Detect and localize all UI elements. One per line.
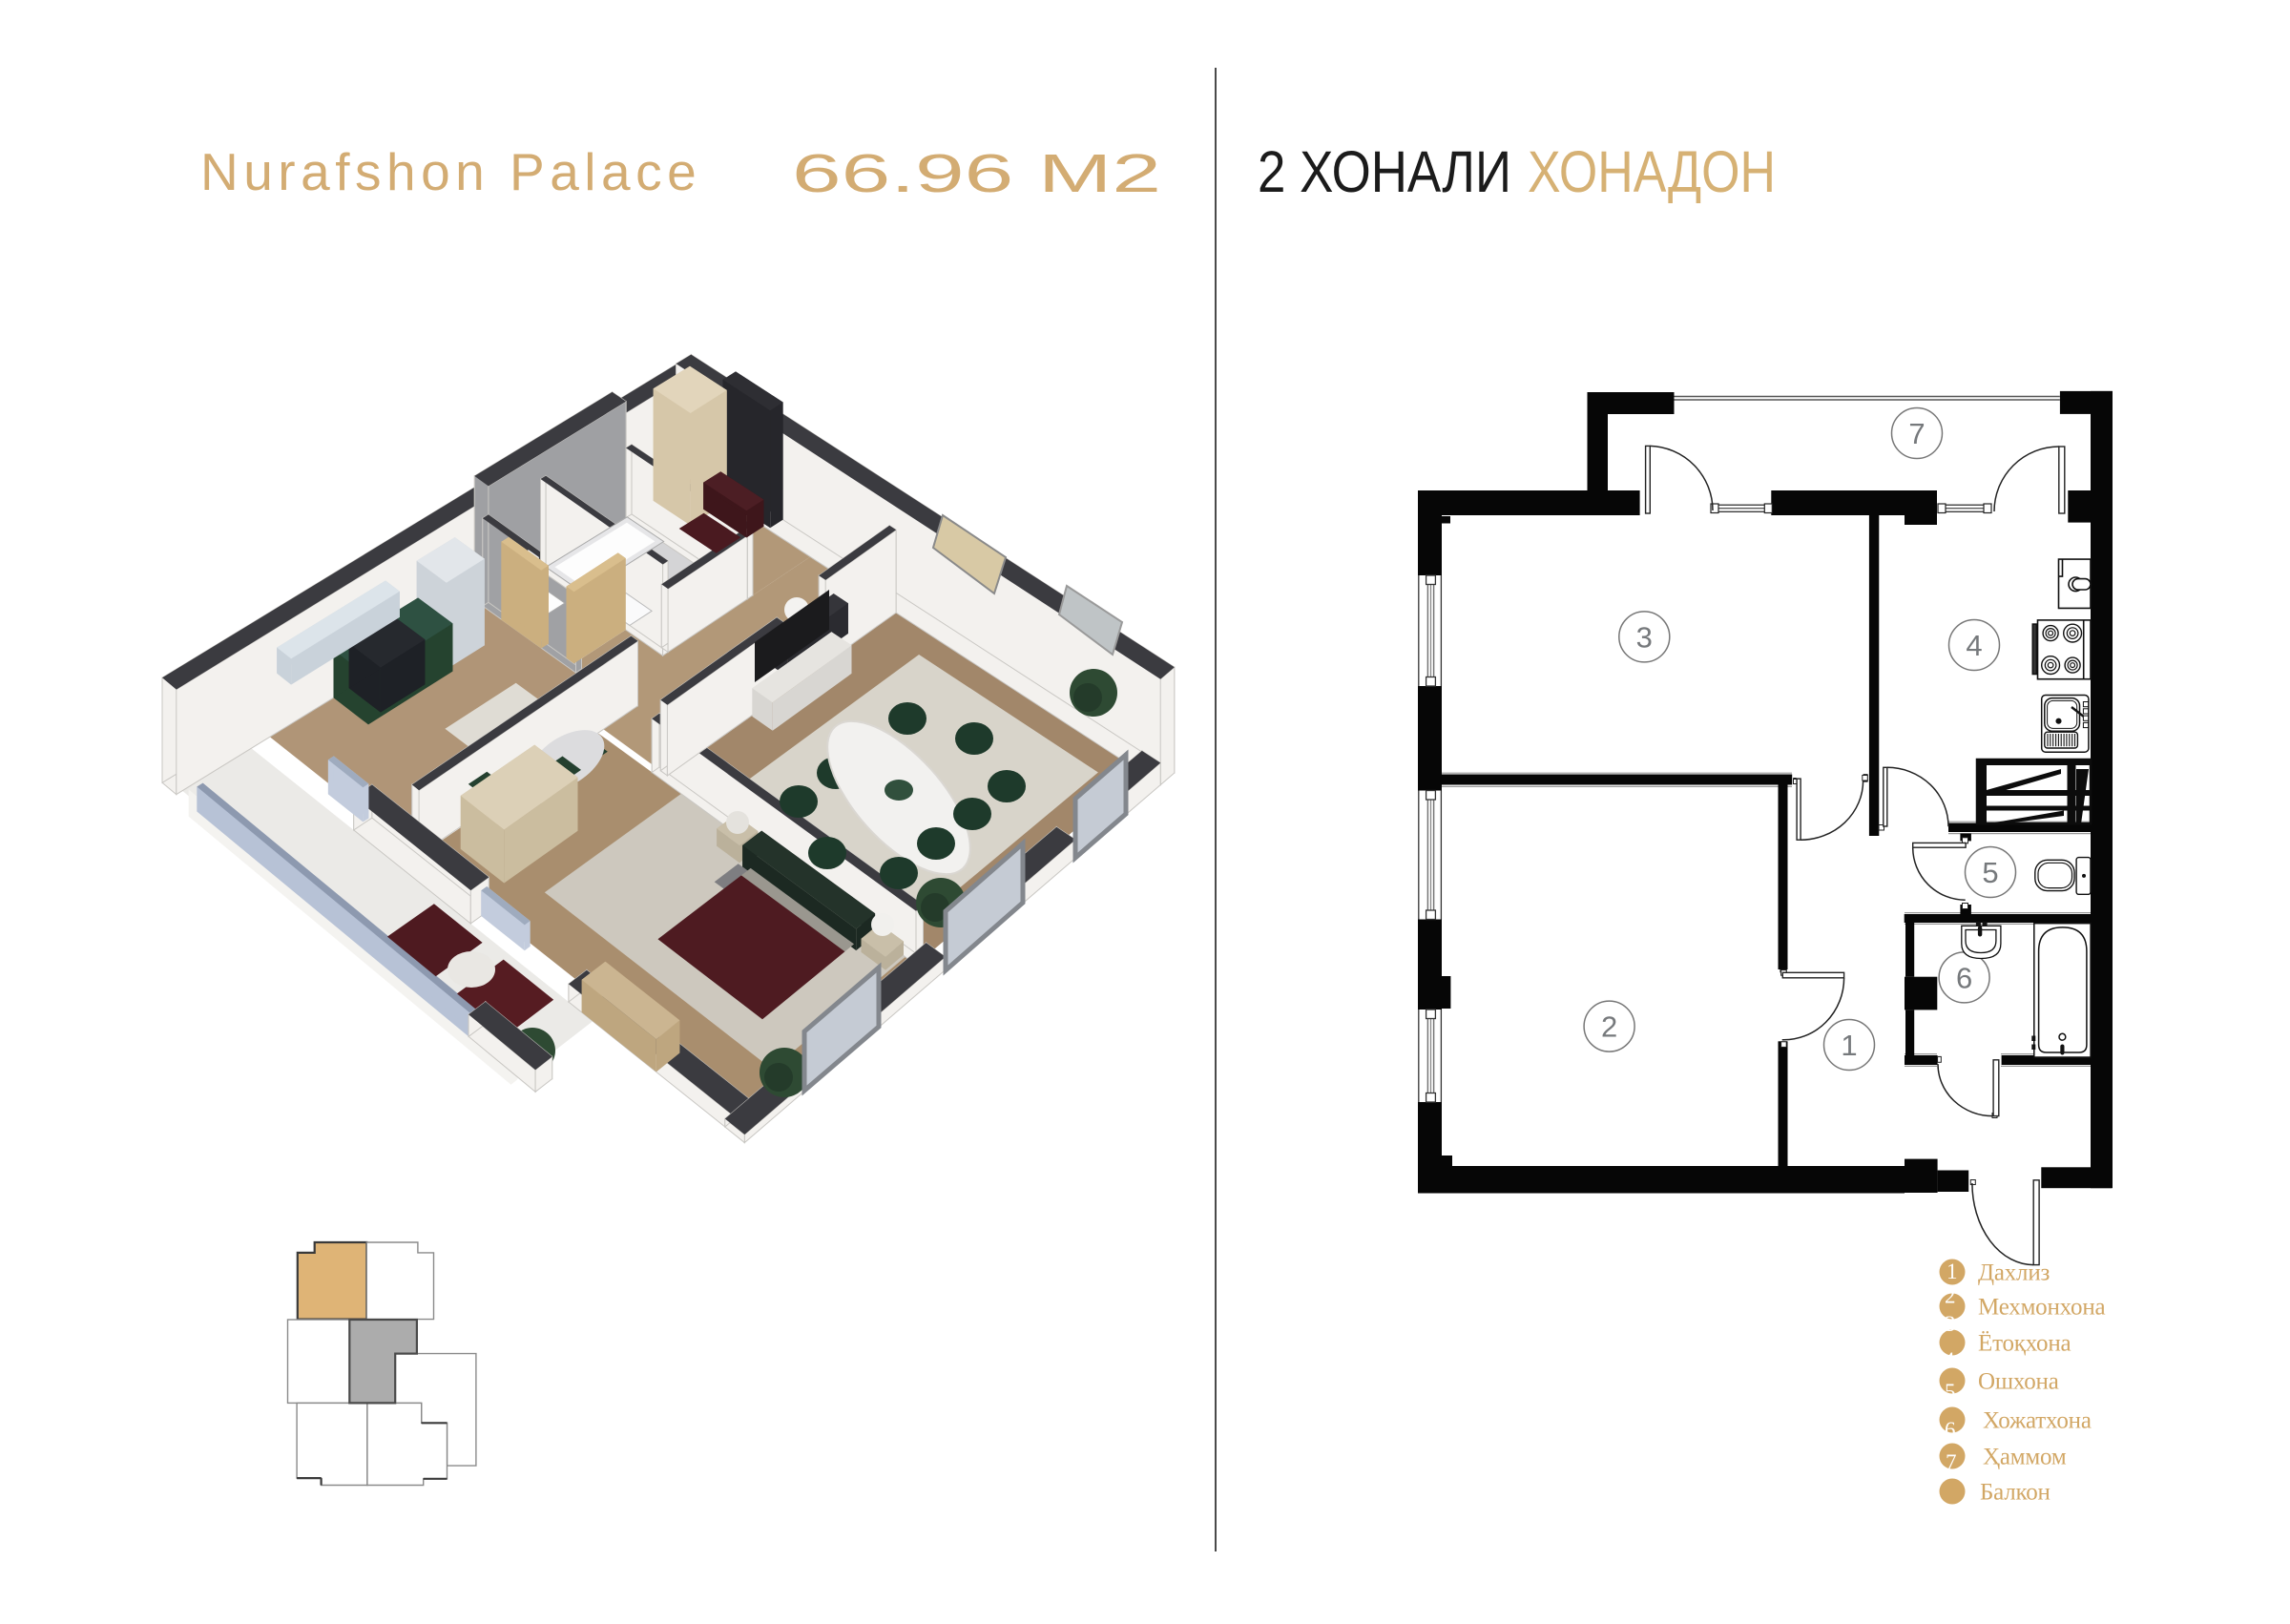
- svg-text:4: 4: [1966, 629, 1982, 662]
- svg-text:4: 4: [1944, 1348, 1955, 1372]
- svg-text:3: 3: [1636, 620, 1653, 654]
- svg-text:7: 7: [1946, 1450, 1957, 1474]
- svg-text:6: 6: [1945, 1418, 1956, 1442]
- svg-text:2 ХОНАЛИ: 2 ХОНАЛИ: [1258, 139, 1511, 204]
- svg-text:66.96 M2: 66.96 M2: [792, 143, 1161, 204]
- svg-text:7: 7: [1908, 417, 1925, 450]
- svg-text:Nurafshon Palace: Nurafshon Palace: [200, 142, 701, 201]
- svg-text:6: 6: [1956, 961, 1972, 994]
- svg-text:3: 3: [1945, 1312, 1956, 1336]
- svg-text:5: 5: [1982, 856, 1998, 889]
- svg-text:1: 1: [1841, 1029, 1857, 1062]
- svg-text:2: 2: [1601, 1010, 1617, 1044]
- svg-text:Дахлиз: Дахлиз: [1978, 1260, 2051, 1286]
- svg-text:Хожатхона: Хожатхона: [1983, 1408, 2092, 1434]
- svg-text:Ошхона: Ошхона: [1978, 1369, 2059, 1395]
- svg-text:1: 1: [1946, 1260, 1958, 1283]
- svg-text:Мехмонхона: Мехмонхона: [1978, 1295, 2105, 1321]
- svg-text:Ҳаммом: Ҳаммом: [1983, 1445, 2067, 1470]
- svg-text:2: 2: [1945, 1284, 1956, 1308]
- svg-text:5: 5: [1945, 1380, 1956, 1404]
- svg-text:ХОНАДОН: ХОНАДОН: [1528, 139, 1776, 204]
- svg-text:Ётоқхона: Ётоқхона: [1978, 1331, 2071, 1357]
- svg-text:Балкон: Балкон: [1980, 1480, 2051, 1506]
